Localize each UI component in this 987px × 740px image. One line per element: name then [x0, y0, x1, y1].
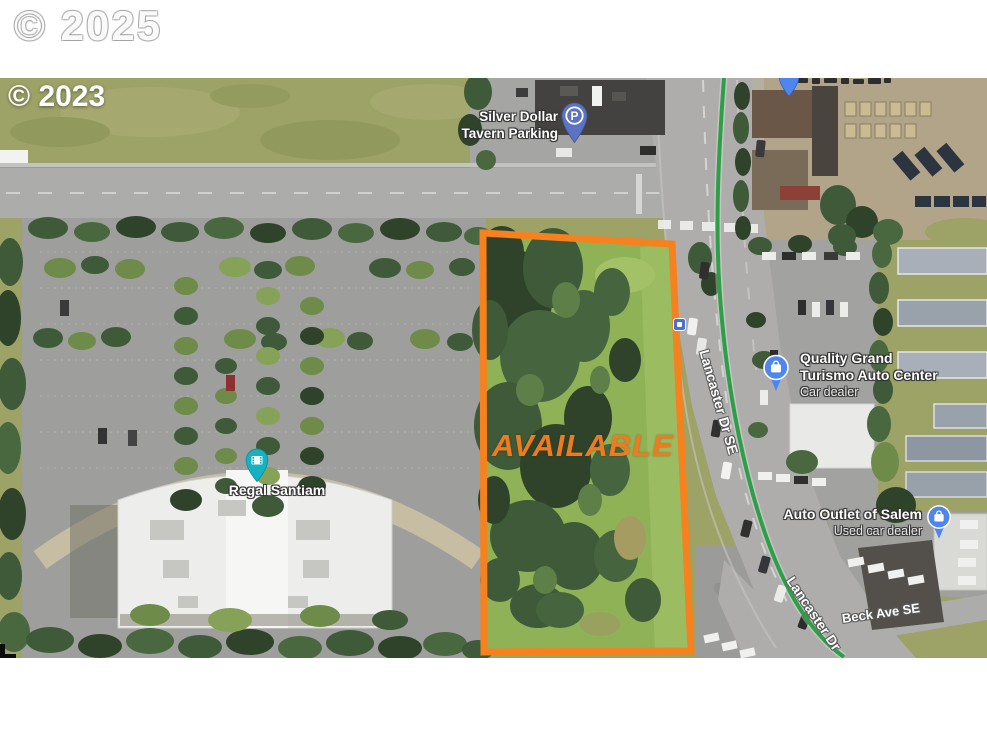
- imagery-copyright-watermark: © 2023: [8, 80, 105, 114]
- poi-label-line: Tavern Parking: [420, 125, 558, 142]
- svg-text:P: P: [570, 109, 578, 123]
- poi-label-line: Auto Outlet of Salem: [760, 506, 922, 523]
- movie-theater-pin-icon: [245, 448, 269, 482]
- poi-label-line: Silver Dollar: [420, 108, 558, 125]
- clipped-pin-icon: [778, 78, 800, 97]
- poi-label-line: Quality Grand: [800, 350, 938, 367]
- poi-label-subtitle: Car dealer: [800, 384, 938, 401]
- page-copyright-watermark: © 2025: [14, 2, 162, 50]
- bus-stop-icon[interactable]: [673, 318, 686, 331]
- satellite-map[interactable]: © 2023 AVAILABLE Silver Dollar Tavern Pa…: [0, 78, 987, 658]
- poi-label-regal-santiam[interactable]: Regal Santiam: [207, 482, 347, 499]
- poi-label-auto-outlet[interactable]: Auto Outlet of Salem Used car dealer: [760, 506, 922, 540]
- shopping-pin-icon: [762, 354, 790, 394]
- parking-pin-icon: P: [561, 102, 588, 143]
- poi-label-line: Turismo Auto Center: [800, 367, 938, 384]
- poi-label-quality-grand[interactable]: Quality Grand Turismo Auto Center Car de…: [800, 350, 938, 401]
- available-label: AVAILABLE: [492, 428, 670, 464]
- listing-aerial-page: © 2025: [0, 0, 987, 740]
- shopping-pin-icon: [926, 504, 952, 542]
- poi-label-silver-dollar[interactable]: Silver Dollar Tavern Parking: [420, 108, 558, 142]
- poi-label-subtitle: Used car dealer: [760, 523, 922, 540]
